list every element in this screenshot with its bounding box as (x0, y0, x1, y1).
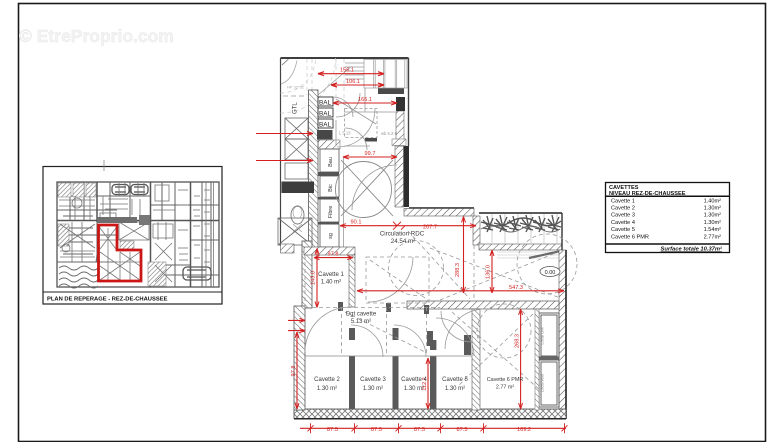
svg-text:BAL: BAL (319, 121, 332, 128)
svg-text:1.30m²: 1.30m² (704, 220, 722, 226)
svg-text:Cavette 5: Cavette 5 (442, 377, 468, 383)
svg-text:87.5: 87.5 (371, 427, 382, 433)
svg-text:87.5: 87.5 (414, 427, 425, 433)
svg-text:GTL: GTL (293, 102, 299, 114)
svg-text:Cavette 5: Cavette 5 (611, 227, 635, 233)
svg-text:Bau: Bau (328, 157, 334, 167)
svg-text:90.1: 90.1 (351, 220, 362, 226)
svg-text:Local velo: Local velo (540, 373, 545, 392)
svg-text:Circulation RDC: Circulation RDC (380, 231, 425, 238)
svg-text:Cavette 3: Cavette 3 (611, 213, 635, 219)
svg-text:288.3: 288.3 (455, 263, 461, 277)
svg-text:Local OM: Local OM (540, 327, 545, 344)
svg-text:207.7: 207.7 (423, 225, 437, 231)
svg-text:1.54m²: 1.54m² (704, 227, 722, 233)
svg-text:87.5: 87.5 (457, 427, 468, 433)
svg-text:1.40 m²: 1.40 m² (321, 280, 341, 286)
svg-text:© EtreProprio.com: © EtreProprio.com (19, 26, 174, 46)
svg-text:Fibre: Fibre (328, 206, 334, 219)
svg-text:2.77 m²: 2.77 m² (496, 385, 514, 391)
svg-text:169.2: 169.2 (517, 427, 531, 433)
svg-text:Cavette 4: Cavette 4 (401, 377, 427, 383)
svg-text:1.30 m²: 1.30 m² (404, 386, 424, 392)
svg-text:5.13 m²: 5.13 m² (351, 319, 371, 325)
svg-text:156.1: 156.1 (340, 68, 354, 74)
svg-text:136.0: 136.0 (486, 265, 492, 279)
svg-text:Cavette 1: Cavette 1 (318, 272, 344, 278)
svg-text:1.30 m²: 1.30 m² (317, 386, 337, 392)
svg-text:97.8: 97.8 (291, 366, 297, 377)
svg-text:97.8: 97.8 (328, 252, 339, 258)
svg-text:Cavette 6 PMR: Cavette 6 PMR (487, 377, 524, 383)
svg-text:Cavette 4: Cavette 4 (611, 220, 635, 226)
svg-text:1.30 m²: 1.30 m² (363, 386, 383, 392)
svg-text:BAL: BAL (319, 99, 332, 106)
svg-text:1.40m²: 1.40m² (704, 198, 722, 204)
svg-text:Cavette 3: Cavette 3 (360, 377, 386, 383)
svg-text:1.30m²: 1.30m² (704, 213, 722, 219)
svg-text:99.7: 99.7 (365, 151, 376, 157)
svg-text:106.1: 106.1 (346, 79, 360, 85)
svg-text:1.30m²: 1.30m² (704, 206, 722, 212)
svg-text:HP 32*32: HP 32*32 (287, 85, 305, 90)
svg-text:2.77m²: 2.77m² (704, 234, 722, 240)
svg-text:BAL: BAL (319, 110, 332, 117)
svg-text:sg: sg (328, 233, 334, 239)
svg-text:547.3: 547.3 (509, 285, 523, 291)
svg-text:Cavette 2: Cavette 2 (314, 377, 340, 383)
svg-text:143.0: 143.0 (311, 271, 317, 285)
svg-text:166.1: 166.1 (358, 97, 372, 103)
svg-text:L 5.13: L 5.13 (339, 131, 351, 136)
svg-text:PLAN DE REPERAGE - REZ-DE-CHAU: PLAN DE REPERAGE - REZ-DE-CHAUSSEE (47, 297, 168, 303)
svg-text:Bic: Bic (328, 184, 334, 192)
svg-text:Cavette 2: Cavette 2 (611, 206, 635, 212)
svg-text:1.30 m²: 1.30 m² (445, 386, 465, 392)
svg-text:Cavette 6 PMR: Cavette 6 PMR (611, 234, 649, 240)
svg-text:0.00: 0.00 (545, 270, 556, 276)
svg-text:87.5: 87.5 (327, 427, 338, 433)
svg-text:268.3: 268.3 (514, 334, 520, 348)
svg-text:Dgt cavette: Dgt cavette (346, 312, 377, 318)
svg-text:24.54 m²: 24.54 m² (391, 238, 415, 245)
svg-text:wb 5.2 E: wb 5.2 E (381, 131, 398, 136)
svg-text:Cavette 1: Cavette 1 (611, 198, 635, 204)
svg-text:Surface totale 10.37m²: Surface totale 10.37m² (660, 245, 723, 252)
